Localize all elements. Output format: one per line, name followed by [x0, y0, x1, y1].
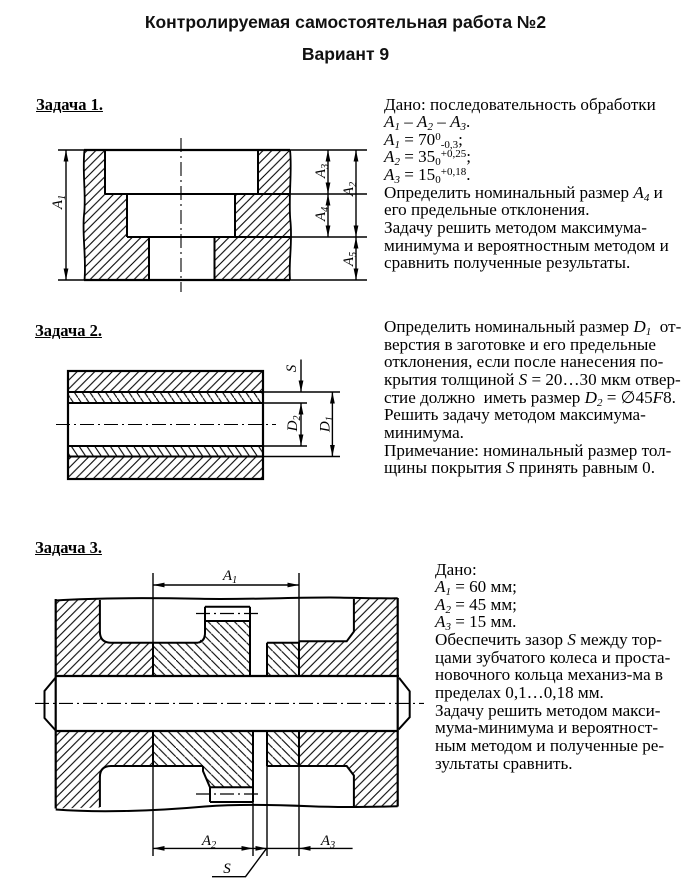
svg-text:A3: A3	[320, 833, 335, 851]
svg-text:D2: D2	[285, 415, 303, 432]
svg-text:S: S	[223, 861, 231, 877]
svg-text:A2: A2	[341, 182, 359, 197]
svg-text:S: S	[284, 364, 300, 372]
svg-text:A4: A4	[313, 207, 331, 222]
svg-text:A1: A1	[222, 568, 237, 586]
svg-text:A1: A1	[50, 195, 68, 210]
svg-text:A2: A2	[201, 833, 216, 851]
svg-text:D1: D1	[318, 416, 336, 433]
svg-text:A5: A5	[341, 252, 359, 267]
svg-text:A3: A3	[313, 164, 331, 179]
